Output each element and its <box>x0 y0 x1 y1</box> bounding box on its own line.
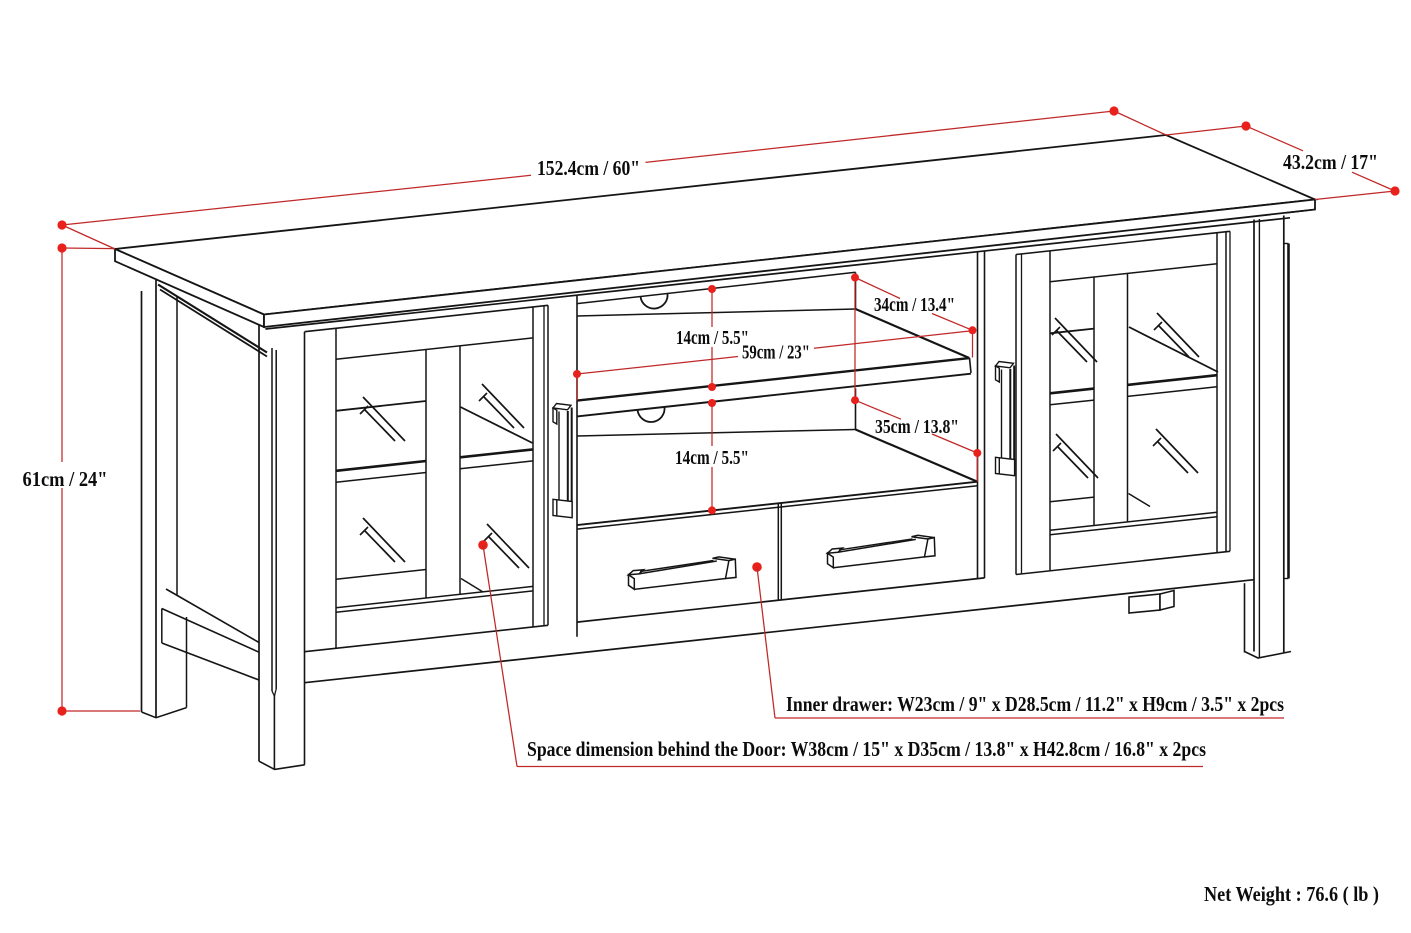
svg-text:43.2cm / 17": 43.2cm / 17" <box>1283 150 1378 174</box>
svg-text:34cm / 13.4": 34cm / 13.4" <box>874 295 955 316</box>
svg-text:59cm / 23": 59cm / 23" <box>742 343 810 364</box>
svg-text:61cm / 24": 61cm / 24" <box>23 467 108 491</box>
svg-text:152.4cm / 60": 152.4cm / 60" <box>537 156 640 180</box>
svg-text:Inner drawer: W23cm / 9" x D28: Inner drawer: W23cm / 9" x D28.5cm / 11.… <box>786 692 1284 716</box>
svg-text:14cm / 5.5": 14cm / 5.5" <box>676 328 749 349</box>
svg-text:Space dimension behind the Doo: Space dimension behind the Door: W38cm /… <box>527 737 1206 761</box>
svg-text:Net Weight : 76.6 ( lb ): Net Weight : 76.6 ( lb ) <box>1204 882 1379 906</box>
svg-text:14cm / 5.5": 14cm / 5.5" <box>675 448 749 469</box>
svg-text:35cm / 13.8": 35cm / 13.8" <box>875 417 959 438</box>
